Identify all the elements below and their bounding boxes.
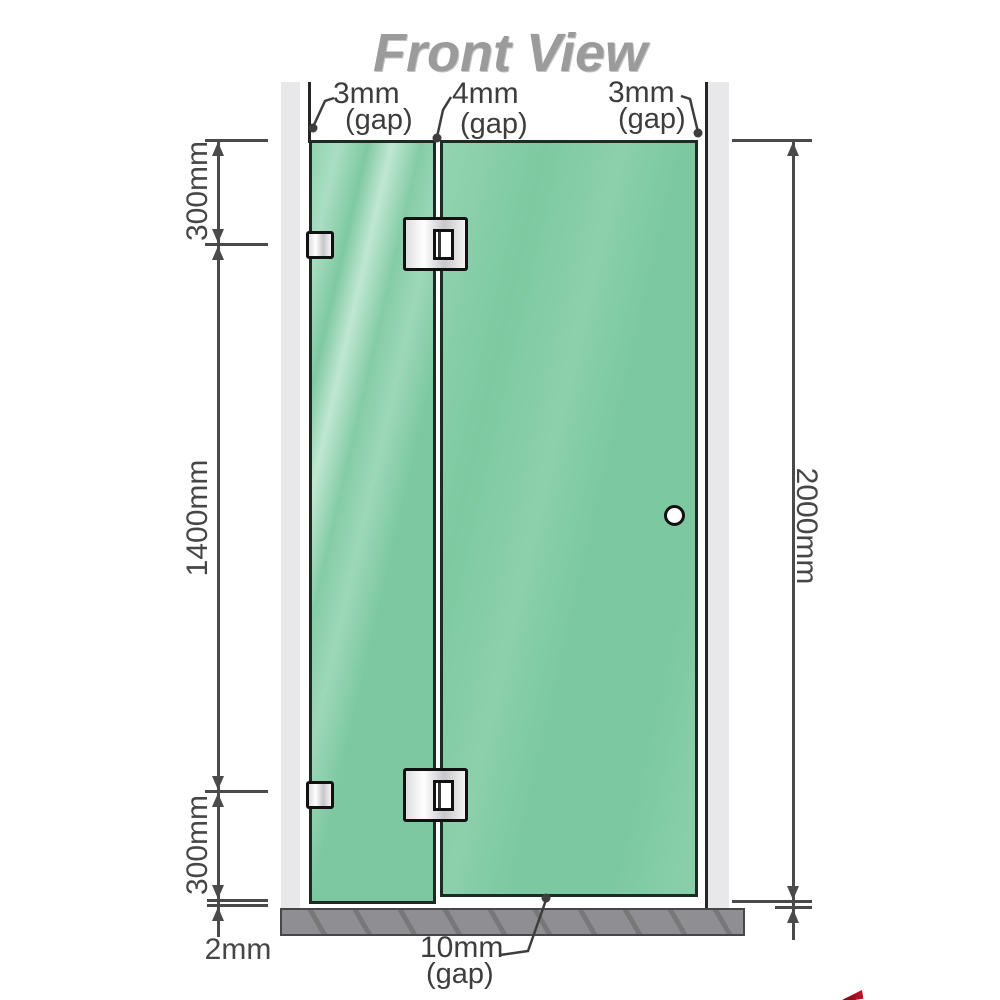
dim-label-2000mm: 2000mm: [789, 468, 823, 585]
dim-label-300mm-top: 300mm: [181, 141, 215, 241]
dim-label-300mm-bottom: 300mm: [181, 795, 215, 895]
arrow-down-icon: [787, 886, 799, 900]
wall-bracket-bottom: [306, 781, 334, 809]
glass-hinge-bottom: [403, 768, 468, 822]
gap-label-top-right: 3mm (gap): [608, 79, 686, 133]
hinge-notch: [433, 229, 454, 260]
door-knob: [664, 505, 685, 526]
gap-label-bottom: 10mm (gap): [420, 934, 503, 988]
floor-base: [280, 908, 745, 936]
front-view-diagram: Front View 300mm 1400mm 300mm 2mm 2000mm…: [0, 0, 1000, 1000]
left-wall: [281, 82, 300, 908]
dim-label-2mm: 2mm: [205, 933, 272, 967]
arrow-down-icon: [212, 776, 224, 790]
panel-gap-line: [438, 783, 441, 808]
gap-note: (gap): [460, 109, 528, 139]
wall-bracket-top: [306, 231, 334, 259]
dim-tick: [207, 899, 268, 902]
gap-label-top-middle: 4mm (gap): [452, 79, 528, 139]
gap-note: (gap): [618, 106, 686, 133]
page-title: Front View: [355, 22, 665, 84]
gap-label-top-left: 3mm (gap): [333, 80, 413, 134]
hinge-notch: [433, 780, 454, 811]
glass-hinge-top: [403, 217, 468, 271]
gap-note: (gap): [426, 961, 503, 988]
arrow-up-icon: [787, 142, 799, 156]
glass-door-panel: [440, 140, 698, 897]
right-wall: [705, 82, 729, 908]
logo-mark-red: [834, 990, 863, 1000]
gap-value: 4mm: [452, 77, 519, 110]
arrow-up-icon: [212, 246, 224, 260]
dim-tick: [732, 139, 812, 142]
arrow-up-icon: [212, 907, 224, 921]
dim-tick: [732, 900, 812, 903]
left-wall-face-line: [308, 82, 311, 143]
panel-gap-line: [438, 232, 441, 257]
arrow-up-icon: [787, 909, 799, 923]
gap-note: (gap): [345, 107, 413, 134]
dim-label-1400mm: 1400mm: [181, 460, 215, 577]
